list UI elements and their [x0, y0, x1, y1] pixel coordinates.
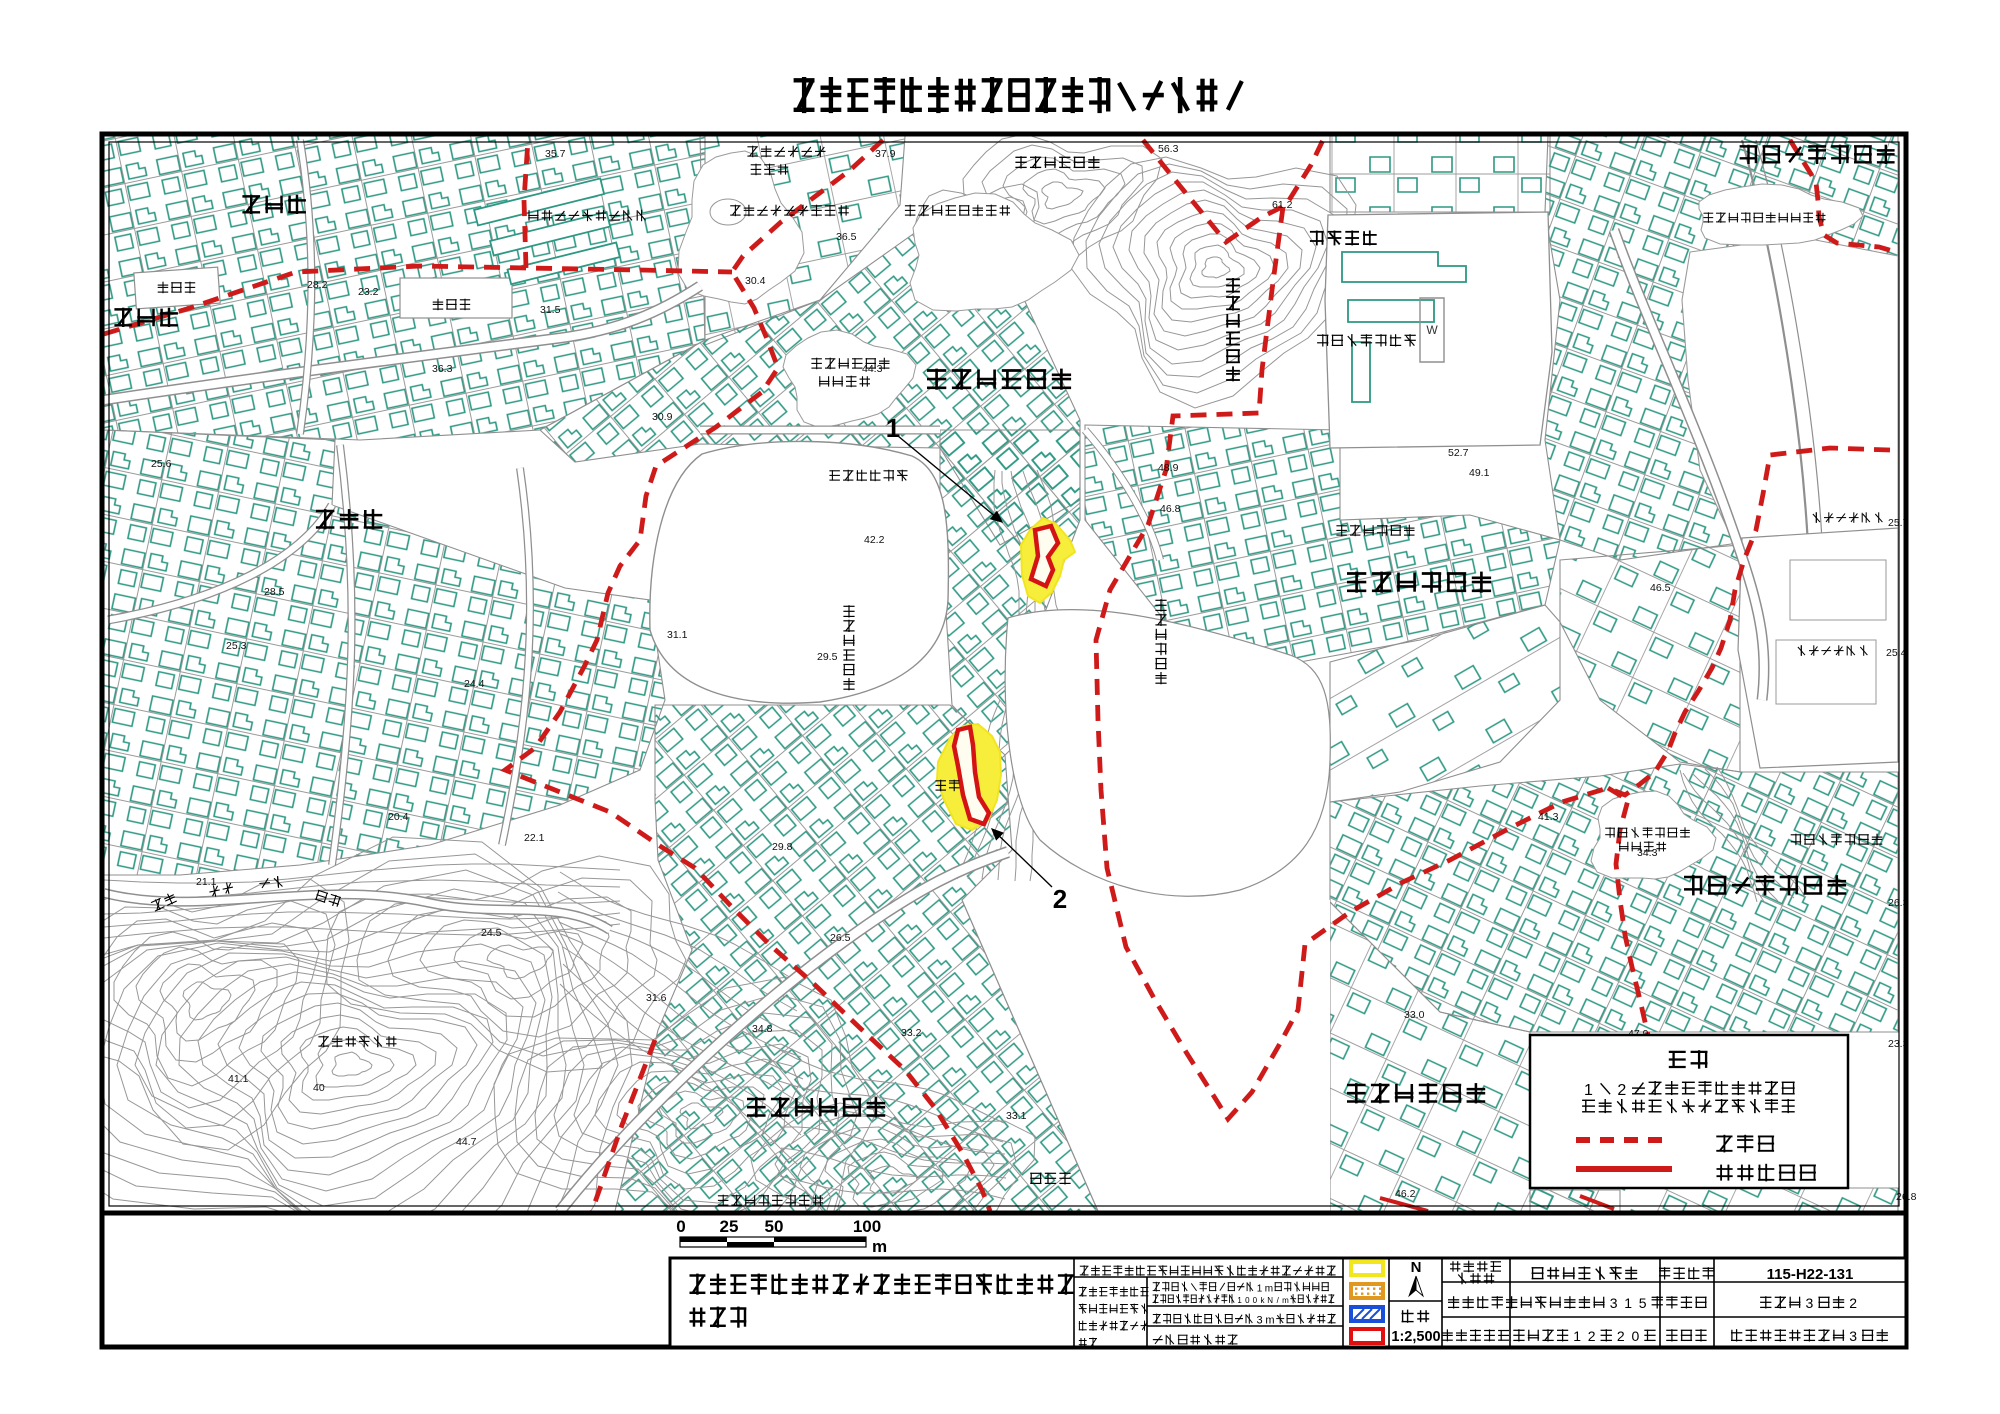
- svg-text:29.5: 29.5: [817, 651, 838, 663]
- svg-text:52.7: 52.7: [1448, 447, 1469, 459]
- svg-text:23.2: 23.2: [358, 286, 379, 298]
- svg-text:24.4: 24.4: [464, 678, 485, 690]
- svg-text:1: 1: [1624, 1295, 1632, 1311]
- svg-text:61.2: 61.2: [1272, 199, 1293, 211]
- svg-text:42.2: 42.2: [864, 534, 885, 546]
- svg-text:26.5: 26.5: [830, 932, 851, 944]
- svg-text:41.1: 41.1: [228, 1073, 249, 1085]
- svg-text:35.7: 35.7: [545, 148, 566, 160]
- svg-text:21.1: 21.1: [196, 876, 217, 888]
- svg-text:m: m: [1282, 1296, 1289, 1305]
- svg-text:1: 1: [1573, 1328, 1581, 1344]
- svg-text:N: N: [1411, 1259, 1422, 1276]
- svg-text:m: m: [1265, 1283, 1273, 1294]
- svg-text:24.5: 24.5: [481, 927, 502, 939]
- svg-text:2: 2: [1588, 1328, 1596, 1344]
- svg-text:29.8: 29.8: [772, 841, 793, 853]
- svg-text:N: N: [1267, 1296, 1273, 1305]
- svg-text:33.2: 33.2: [901, 1027, 922, 1039]
- svg-text:5: 5: [1639, 1295, 1647, 1311]
- svg-text:115-H22-131: 115-H22-131: [1767, 1266, 1854, 1283]
- svg-text:m: m: [1265, 1314, 1274, 1326]
- svg-text:100: 100: [853, 1217, 881, 1236]
- svg-text:3: 3: [1257, 1314, 1263, 1326]
- svg-text:28.2: 28.2: [307, 279, 328, 291]
- svg-text:1: 1: [886, 413, 900, 443]
- svg-text:31.5: 31.5: [540, 304, 561, 316]
- svg-text:33.1: 33.1: [1006, 1110, 1027, 1122]
- svg-text:m: m: [872, 1237, 887, 1256]
- svg-text:33.0: 33.0: [1404, 1009, 1425, 1021]
- svg-text:28.5: 28.5: [264, 586, 285, 598]
- svg-text:1: 1: [1237, 1296, 1242, 1305]
- svg-text:3: 3: [1806, 1295, 1814, 1311]
- svg-text:22.1: 22.1: [524, 832, 545, 844]
- svg-text:25.6: 25.6: [151, 458, 172, 470]
- svg-text:25.3: 25.3: [226, 640, 247, 652]
- svg-text:46.8: 46.8: [1160, 503, 1181, 515]
- svg-text:48.9: 48.9: [1158, 462, 1179, 474]
- svg-text:0: 0: [1245, 1296, 1250, 1305]
- svg-text:30.4: 30.4: [745, 275, 766, 287]
- svg-text:40: 40: [313, 1082, 325, 1094]
- svg-text:1: 1: [1257, 1283, 1263, 1294]
- svg-text:56.3: 56.3: [1158, 143, 1179, 155]
- svg-text:3: 3: [1610, 1295, 1618, 1311]
- svg-text:W: W: [1426, 323, 1438, 337]
- svg-text:30.9: 30.9: [652, 411, 673, 423]
- svg-text:0: 0: [676, 1217, 685, 1236]
- svg-text:46.5: 46.5: [1650, 582, 1671, 594]
- svg-text:31.6: 31.6: [646, 992, 667, 1004]
- svg-text:2: 2: [1617, 1328, 1625, 1344]
- svg-text:20.4: 20.4: [388, 811, 409, 823]
- svg-text:34.3: 34.3: [1637, 847, 1658, 859]
- svg-text:0: 0: [1253, 1296, 1258, 1305]
- svg-text:3: 3: [1849, 1328, 1857, 1344]
- svg-text:1:2,500: 1:2,500: [1391, 1329, 1440, 1345]
- svg-text:0: 0: [1632, 1328, 1640, 1344]
- svg-text:34.8: 34.8: [752, 1023, 773, 1035]
- svg-text:44.7: 44.7: [456, 1136, 477, 1148]
- svg-text:36.3: 36.3: [432, 363, 453, 375]
- svg-text:2: 2: [1849, 1295, 1857, 1311]
- svg-text:44.3: 44.3: [862, 363, 883, 375]
- svg-text:2: 2: [1617, 1082, 1626, 1099]
- svg-text:31.1: 31.1: [667, 629, 688, 641]
- svg-text:1: 1: [1584, 1082, 1593, 1099]
- svg-text:2: 2: [1053, 884, 1067, 914]
- svg-text:37.9: 37.9: [875, 148, 896, 160]
- svg-text:50: 50: [765, 1217, 784, 1236]
- svg-text:49.1: 49.1: [1469, 467, 1490, 479]
- svg-text:36.5: 36.5: [836, 231, 857, 243]
- svg-text:46.2: 46.2: [1395, 1188, 1416, 1200]
- svg-text:25: 25: [720, 1217, 739, 1236]
- svg-text:41.3: 41.3: [1538, 811, 1559, 823]
